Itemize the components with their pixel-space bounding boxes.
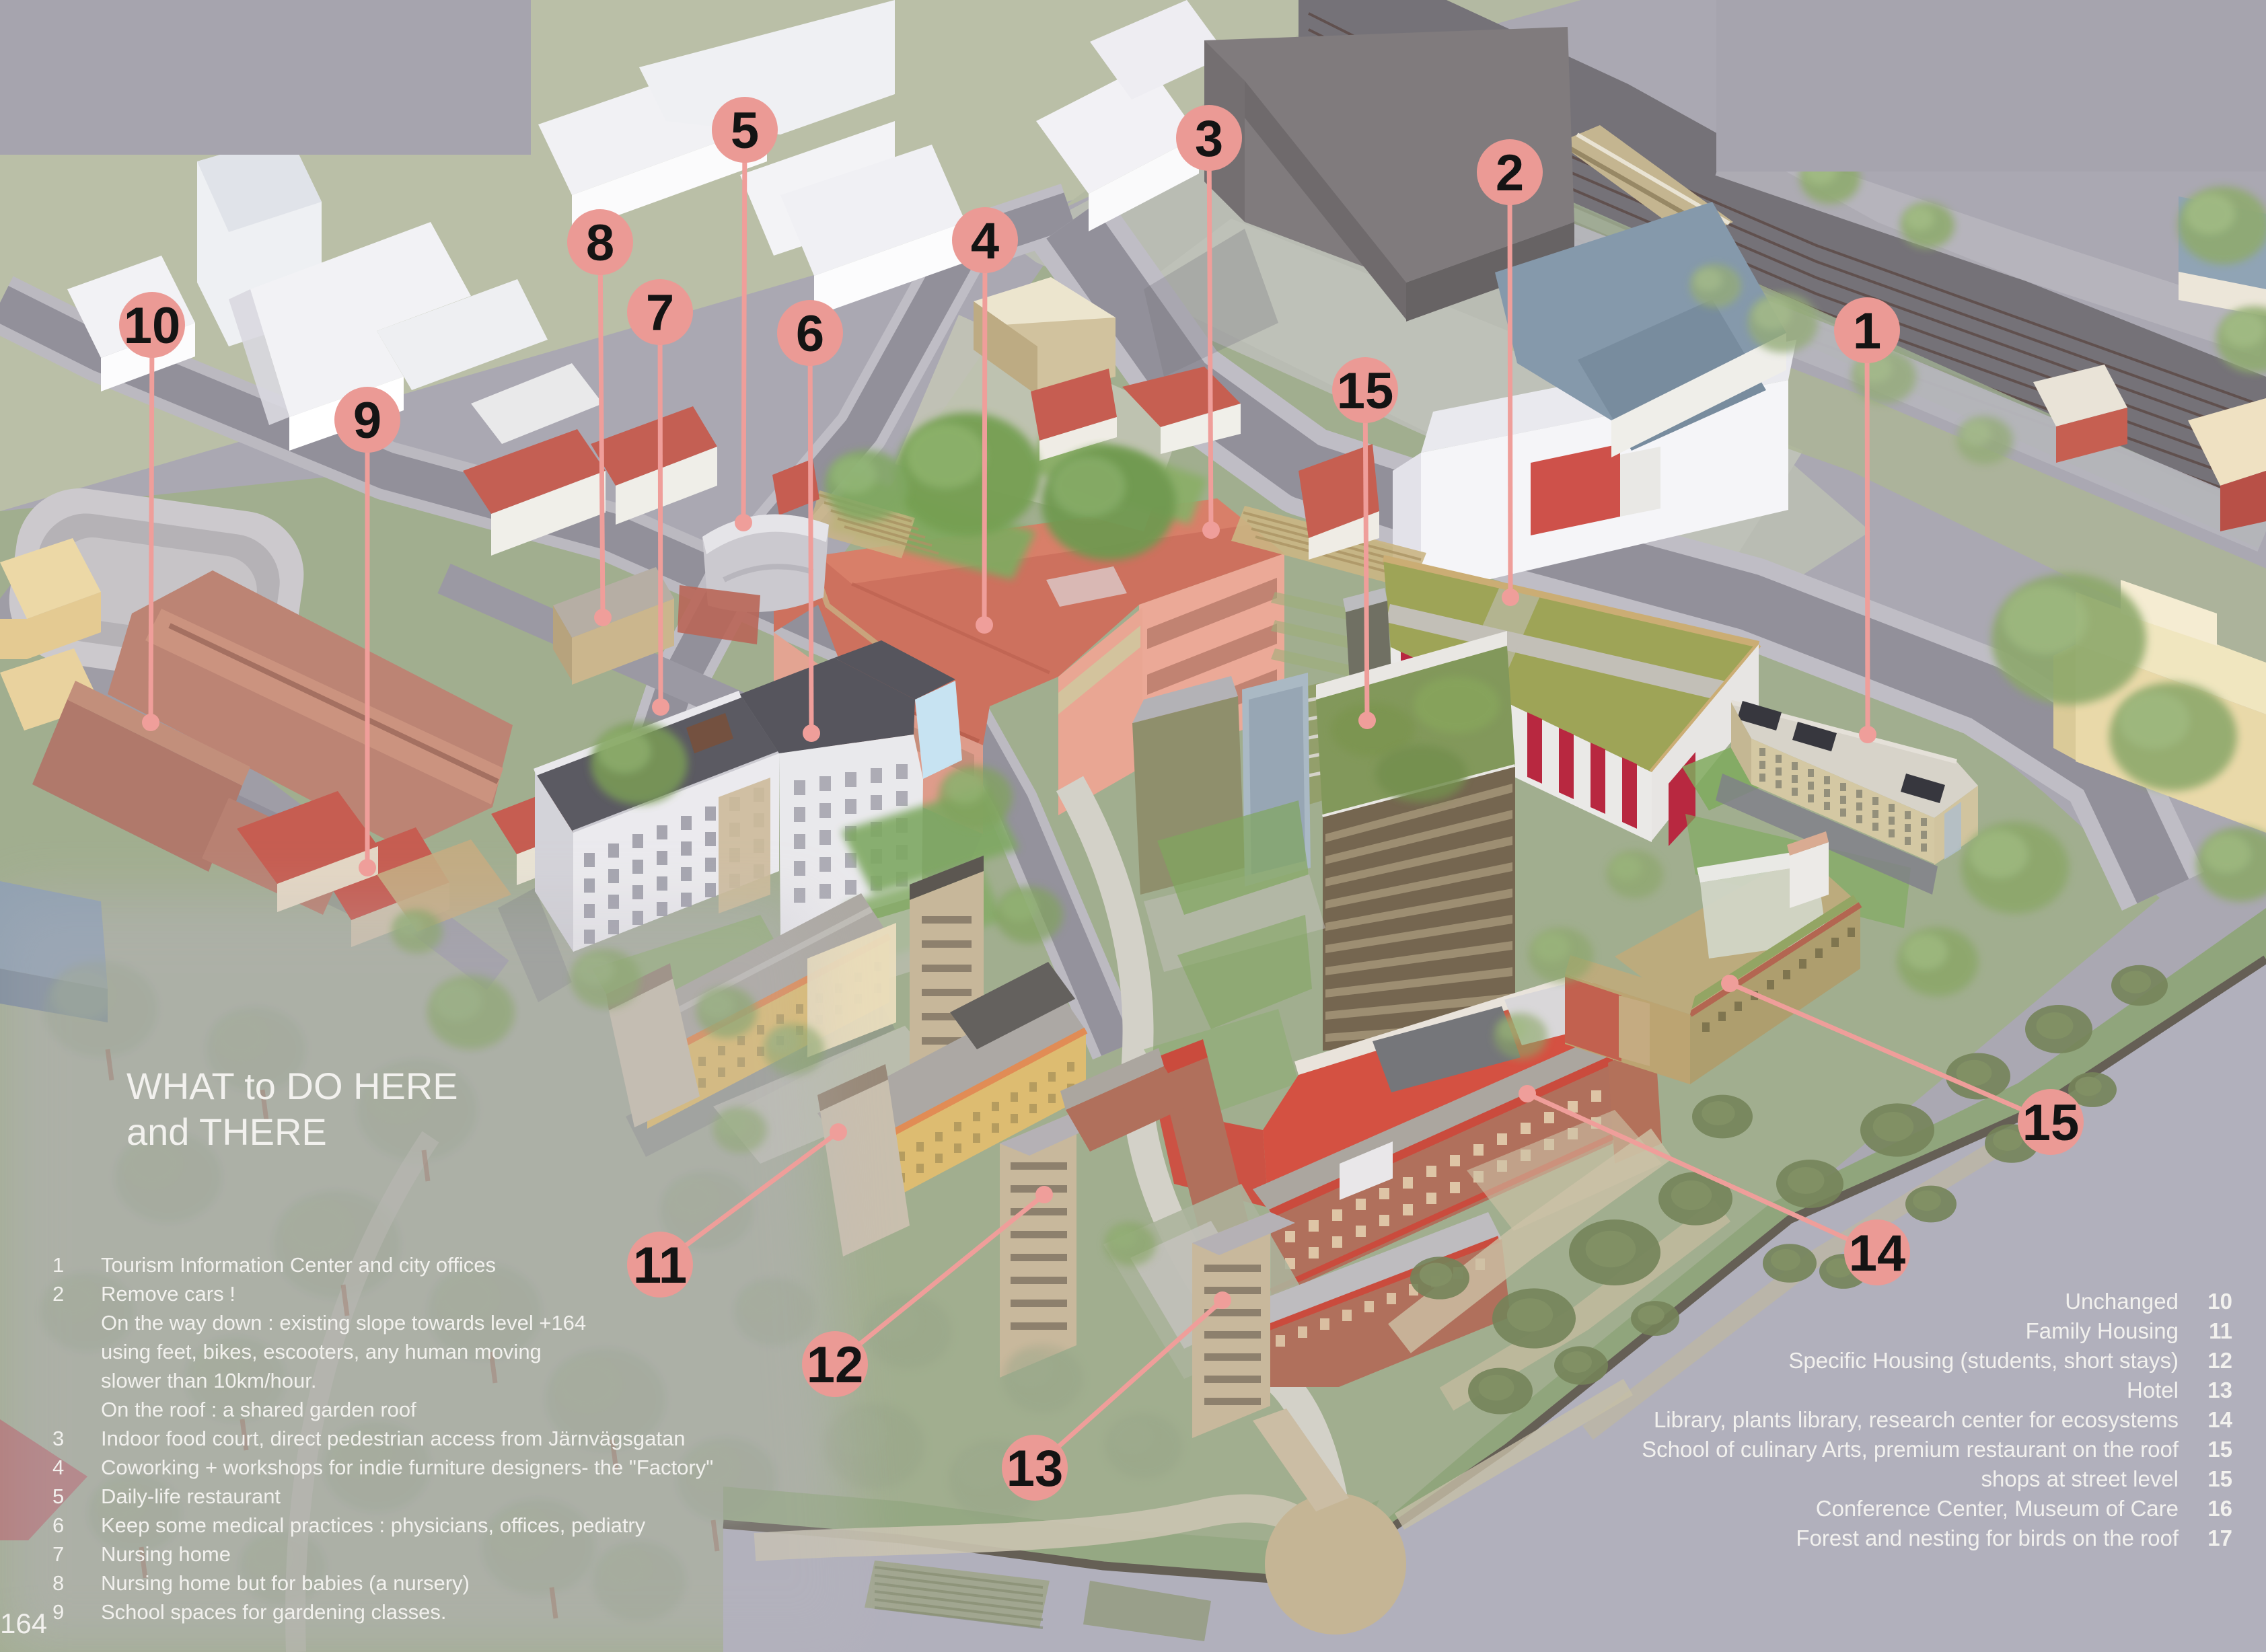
svg-text:Daily-life restaurant: Daily-life restaurant xyxy=(101,1485,281,1508)
svg-text:Nursing home but for babies (a: Nursing home but for babies (a nursery) xyxy=(101,1571,470,1595)
svg-text:School of culinary Arts, premi: School of culinary Arts, premium restaur… xyxy=(1642,1437,2179,1462)
svg-text:5: 5 xyxy=(52,1485,64,1508)
svg-text:3: 3 xyxy=(52,1427,64,1450)
svg-text:Hotel: Hotel xyxy=(2127,1378,2179,1402)
svg-text:School spaces for gardening cl: School spaces for gardening classes. xyxy=(101,1600,447,1624)
svg-text:12: 12 xyxy=(2207,1348,2232,1373)
svg-text:Nursing home: Nursing home xyxy=(101,1542,231,1566)
svg-text:2: 2 xyxy=(52,1282,64,1306)
svg-text:15: 15 xyxy=(2022,1094,2080,1152)
svg-text:On the way down : existing slo: On the way down : existing slope towards… xyxy=(101,1311,586,1335)
svg-text:Remove cars !: Remove cars ! xyxy=(101,1282,235,1306)
svg-text:16: 16 xyxy=(2207,1496,2232,1521)
svg-text:9: 9 xyxy=(52,1600,64,1624)
svg-text:Specific Housing (students, sh: Specific Housing (students, short stays) xyxy=(1788,1348,2179,1373)
svg-text:15: 15 xyxy=(2207,1466,2232,1491)
svg-text:4: 4 xyxy=(52,1456,64,1479)
svg-text:Keep some medical practices :: Keep some medical practices : physicians… xyxy=(101,1513,646,1537)
svg-text:8: 8 xyxy=(52,1571,64,1595)
svg-text:1: 1 xyxy=(1853,303,1881,360)
svg-text:14: 14 xyxy=(1849,1225,1906,1282)
svg-text:7: 7 xyxy=(52,1542,64,1566)
svg-text:Unchanged: Unchanged xyxy=(2065,1289,2179,1314)
svg-text:8: 8 xyxy=(586,215,614,272)
svg-text:9: 9 xyxy=(353,392,381,449)
svg-text:4: 4 xyxy=(971,213,999,270)
svg-text:2: 2 xyxy=(1496,145,1524,202)
svg-text:slower than 10km/hour.: slower than 10km/hour. xyxy=(101,1369,317,1392)
svg-text:shops at street level: shops at street level xyxy=(1981,1466,2179,1491)
svg-text:1: 1 xyxy=(52,1253,64,1277)
svg-text:15: 15 xyxy=(1337,363,1394,420)
svg-text:On the roof : a shared garden: On the roof : a shared garden roof xyxy=(101,1398,416,1421)
svg-text:and THERE: and THERE xyxy=(126,1111,327,1153)
svg-text:7: 7 xyxy=(646,285,674,342)
svg-text:Family Housing: Family Housing xyxy=(2026,1318,2179,1343)
svg-text:17: 17 xyxy=(2207,1526,2232,1550)
svg-text:Coworking + workshops for indi: Coworking + workshops for indie furnitur… xyxy=(101,1456,713,1479)
svg-text:14: 14 xyxy=(2207,1407,2232,1432)
svg-text:Conference Center, Museum of C: Conference Center, Museum of Care xyxy=(1816,1496,2179,1521)
svg-text:Library, plants library, resea: Library, plants library, research center… xyxy=(1654,1407,2179,1432)
svg-text:13: 13 xyxy=(2207,1378,2232,1402)
svg-text:using feet, bikes, escooters,: using feet, bikes, escooters, any human … xyxy=(101,1340,542,1363)
svg-text:12: 12 xyxy=(807,1337,864,1394)
svg-text:6: 6 xyxy=(796,305,824,363)
svg-text:11: 11 xyxy=(633,1237,687,1294)
svg-text:Forest and nesting for birds o: Forest and nesting for birds on the roof xyxy=(1796,1526,2179,1550)
svg-text:10: 10 xyxy=(124,297,181,354)
svg-text:3: 3 xyxy=(1195,110,1223,167)
svg-text:11: 11 xyxy=(2209,1318,2232,1343)
svg-text:WHAT to DO HERE: WHAT to DO HERE xyxy=(126,1065,458,1107)
svg-text:13: 13 xyxy=(1007,1440,1064,1497)
svg-text:10: 10 xyxy=(2207,1289,2232,1314)
svg-text:15: 15 xyxy=(2207,1437,2232,1462)
svg-text:164: 164 xyxy=(0,1608,47,1639)
svg-text:Tourism Information Center an: Tourism Information Center and city offi… xyxy=(101,1253,496,1277)
svg-text:5: 5 xyxy=(731,102,759,159)
svg-text:6: 6 xyxy=(52,1513,64,1537)
svg-text:Indoor food court, direct pede: Indoor food court, direct pedestrian acc… xyxy=(101,1427,685,1450)
